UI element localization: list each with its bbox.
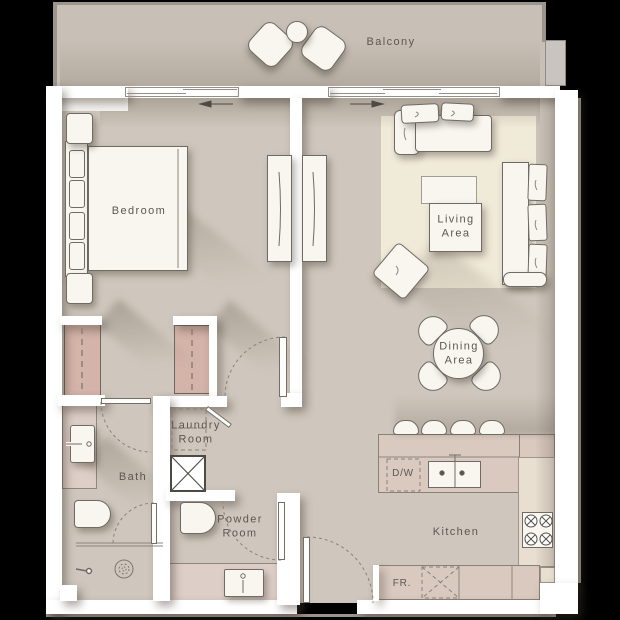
side-sofa-seat — [502, 162, 529, 285]
shower-door-leaf — [151, 503, 157, 544]
fridge-label: FR. — [393, 578, 412, 591]
kitchen-counter-top-right — [519, 434, 555, 458]
sofa-back-cushion — [401, 103, 440, 124]
wall-closet-right-side — [209, 323, 217, 398]
closet-left — [64, 324, 101, 396]
wall-bedroom-south-left — [60, 316, 102, 325]
bedroom-label: Bedroom — [112, 205, 166, 219]
bar-stool — [479, 420, 505, 435]
sliding-panel-right — [302, 155, 327, 262]
sliding-panel-left — [267, 155, 292, 262]
balcony-label: Balcony — [367, 36, 416, 50]
balcony-rail-top — [53, 2, 545, 5]
dining-area-label: Dining Area — [439, 340, 479, 368]
cooktop — [522, 512, 553, 548]
wall-top-left-ledge — [62, 98, 128, 111]
powder-door-leaf — [278, 502, 285, 560]
wall-right — [555, 90, 578, 587]
laundry-room-label: Laundry Room — [171, 419, 221, 447]
bar-stool — [421, 420, 447, 435]
wall-left — [46, 86, 62, 614]
bedroom-window — [125, 86, 240, 98]
wall-bottom-left — [46, 600, 297, 614]
wall-right-outer-edge — [578, 98, 581, 583]
wall-bottom-right — [357, 600, 545, 614]
bath-sink — [70, 425, 95, 463]
nightstand-bottom — [66, 273, 93, 304]
entry-door-leaf — [303, 537, 310, 603]
sofa-back-cushion — [441, 102, 475, 122]
balcony-rail-left — [53, 2, 57, 87]
wall-bottom-outer-edge — [46, 614, 556, 617]
kitchen-sink — [428, 461, 481, 488]
wall-corner-bottom-right — [540, 583, 578, 614]
nightstand-top — [66, 113, 93, 144]
wall-entry-kitchen-stub — [373, 565, 379, 601]
wall-shower-stub — [60, 585, 77, 601]
powder-sink — [224, 569, 264, 597]
wall-bath-north-left — [58, 395, 105, 406]
bed-pillow — [69, 150, 85, 178]
side-sofa-armrest — [503, 272, 547, 287]
balcony-column — [545, 40, 566, 86]
bar-stool — [393, 420, 419, 435]
bed-pillow — [69, 212, 85, 240]
balcony-rail-right — [542, 2, 546, 42]
bath-door-leaf — [101, 398, 151, 404]
dishwasher-label: D/W — [392, 468, 414, 481]
powder-toilet — [180, 502, 216, 534]
side-sofa-back-cushion — [527, 164, 547, 202]
bedroom-door-leaf — [279, 337, 287, 397]
kitchen-counter-corner — [540, 567, 555, 583]
powder-room-label: Powder Room — [217, 513, 263, 541]
bath-label: Bath — [119, 471, 147, 485]
closet-right — [174, 325, 210, 394]
wall-top-middle — [238, 86, 330, 98]
wall-top-right — [498, 86, 560, 98]
balcony-floor — [55, 3, 545, 87]
bath-toilet — [74, 500, 111, 528]
bar-stool — [450, 420, 476, 435]
kitchen-label: Kitchen — [433, 526, 480, 540]
coffee-table-upper — [421, 176, 477, 204]
living-window — [328, 86, 500, 98]
balcony-side-table — [286, 21, 308, 43]
bed-pillow — [69, 180, 85, 208]
side-sofa-back-cushion — [527, 204, 547, 242]
living-area-label: Living Area — [437, 213, 474, 241]
bed-pillow — [69, 242, 85, 270]
shaft-box — [170, 455, 206, 492]
floor-plan: Balcony — [0, 0, 620, 620]
